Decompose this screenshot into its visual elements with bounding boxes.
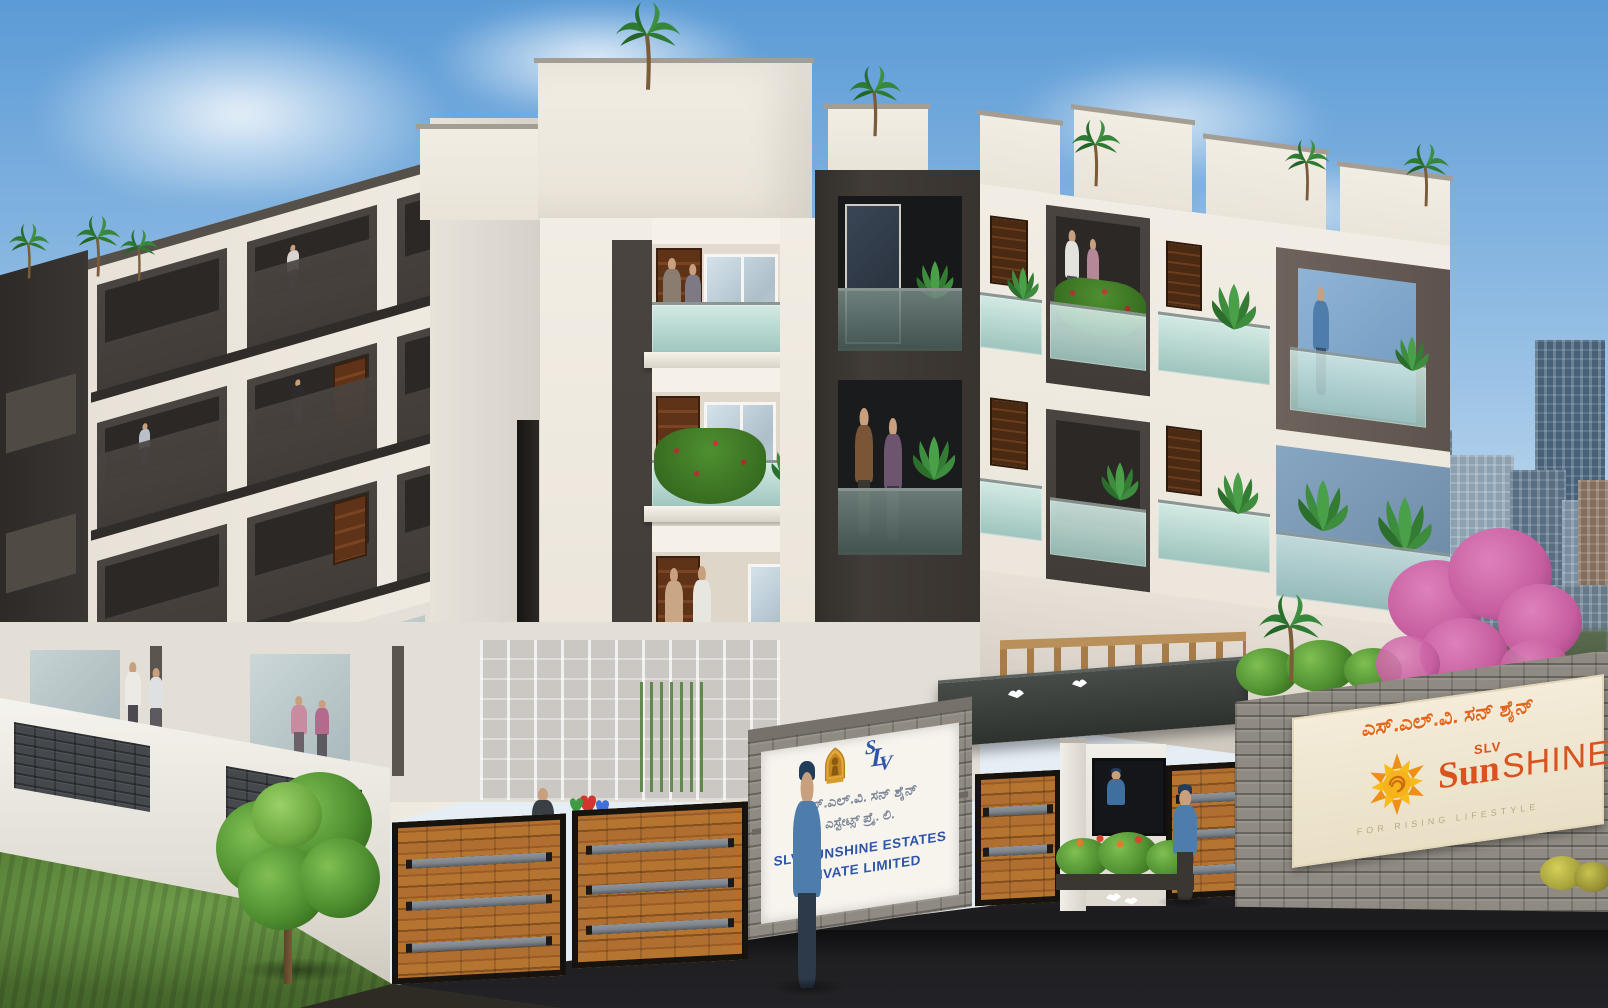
dove-icon <box>1106 892 1121 902</box>
security-guard <box>788 772 826 992</box>
slv-monogram: S L V <box>857 733 901 786</box>
palm-icon <box>118 228 160 282</box>
sun-logo-icon <box>1364 747 1430 822</box>
balcony-module <box>652 368 812 526</box>
dove-icon <box>1072 678 1087 688</box>
palm-icon <box>1400 142 1452 208</box>
plant-icon <box>1296 468 1350 541</box>
palm-icon <box>6 222 52 280</box>
plant-icon <box>1100 452 1140 509</box>
person <box>682 264 704 346</box>
slate-panel <box>14 722 150 812</box>
person <box>312 700 332 762</box>
plant-icon <box>911 428 957 486</box>
palm-icon <box>612 0 684 92</box>
dove-icon <box>952 700 966 710</box>
plant-icon <box>1006 259 1040 305</box>
plant-icon <box>915 254 955 304</box>
person <box>1103 771 1129 831</box>
plant-icon <box>1216 463 1260 521</box>
balcony-module <box>652 218 812 368</box>
entrance-sign-wall: S L V ಎಸ್.ಎಲ್.ವಿ. ಸನ್ ಶೈನ್ ಎಸ್ಟೇಟ್ಸ್ ಪ್ರ… <box>748 709 972 940</box>
person <box>851 408 877 538</box>
booth-window <box>1092 758 1166 836</box>
plant-icon <box>1394 329 1430 378</box>
cloud <box>430 0 760 110</box>
palm-icon <box>1252 592 1330 684</box>
gate-panel[interactable] <box>392 813 566 984</box>
gate-panel[interactable] <box>975 770 1061 907</box>
hanging-plant <box>654 428 766 504</box>
cloud <box>30 15 450 195</box>
palm-icon <box>846 64 904 138</box>
brand-lockup: SLV Sun SHINE <box>1438 733 1598 805</box>
palm-icon <box>1068 118 1124 188</box>
palm-icon <box>72 214 124 278</box>
security-guard <box>1168 790 1202 902</box>
gate-panel[interactable] <box>572 801 748 968</box>
person <box>881 418 905 542</box>
palm-icon <box>1282 138 1332 202</box>
plant-icon <box>770 442 808 488</box>
dove-icon <box>1008 688 1024 699</box>
architectural-render: S L V ಎಸ್.ಎಲ್.ವಿ. ಸನ್ ಶೈನ್ ಎಸ್ಟೇಟ್ಸ್ ಪ್ರ… <box>0 0 1608 1008</box>
person <box>660 258 684 344</box>
dove-icon <box>1124 896 1138 905</box>
